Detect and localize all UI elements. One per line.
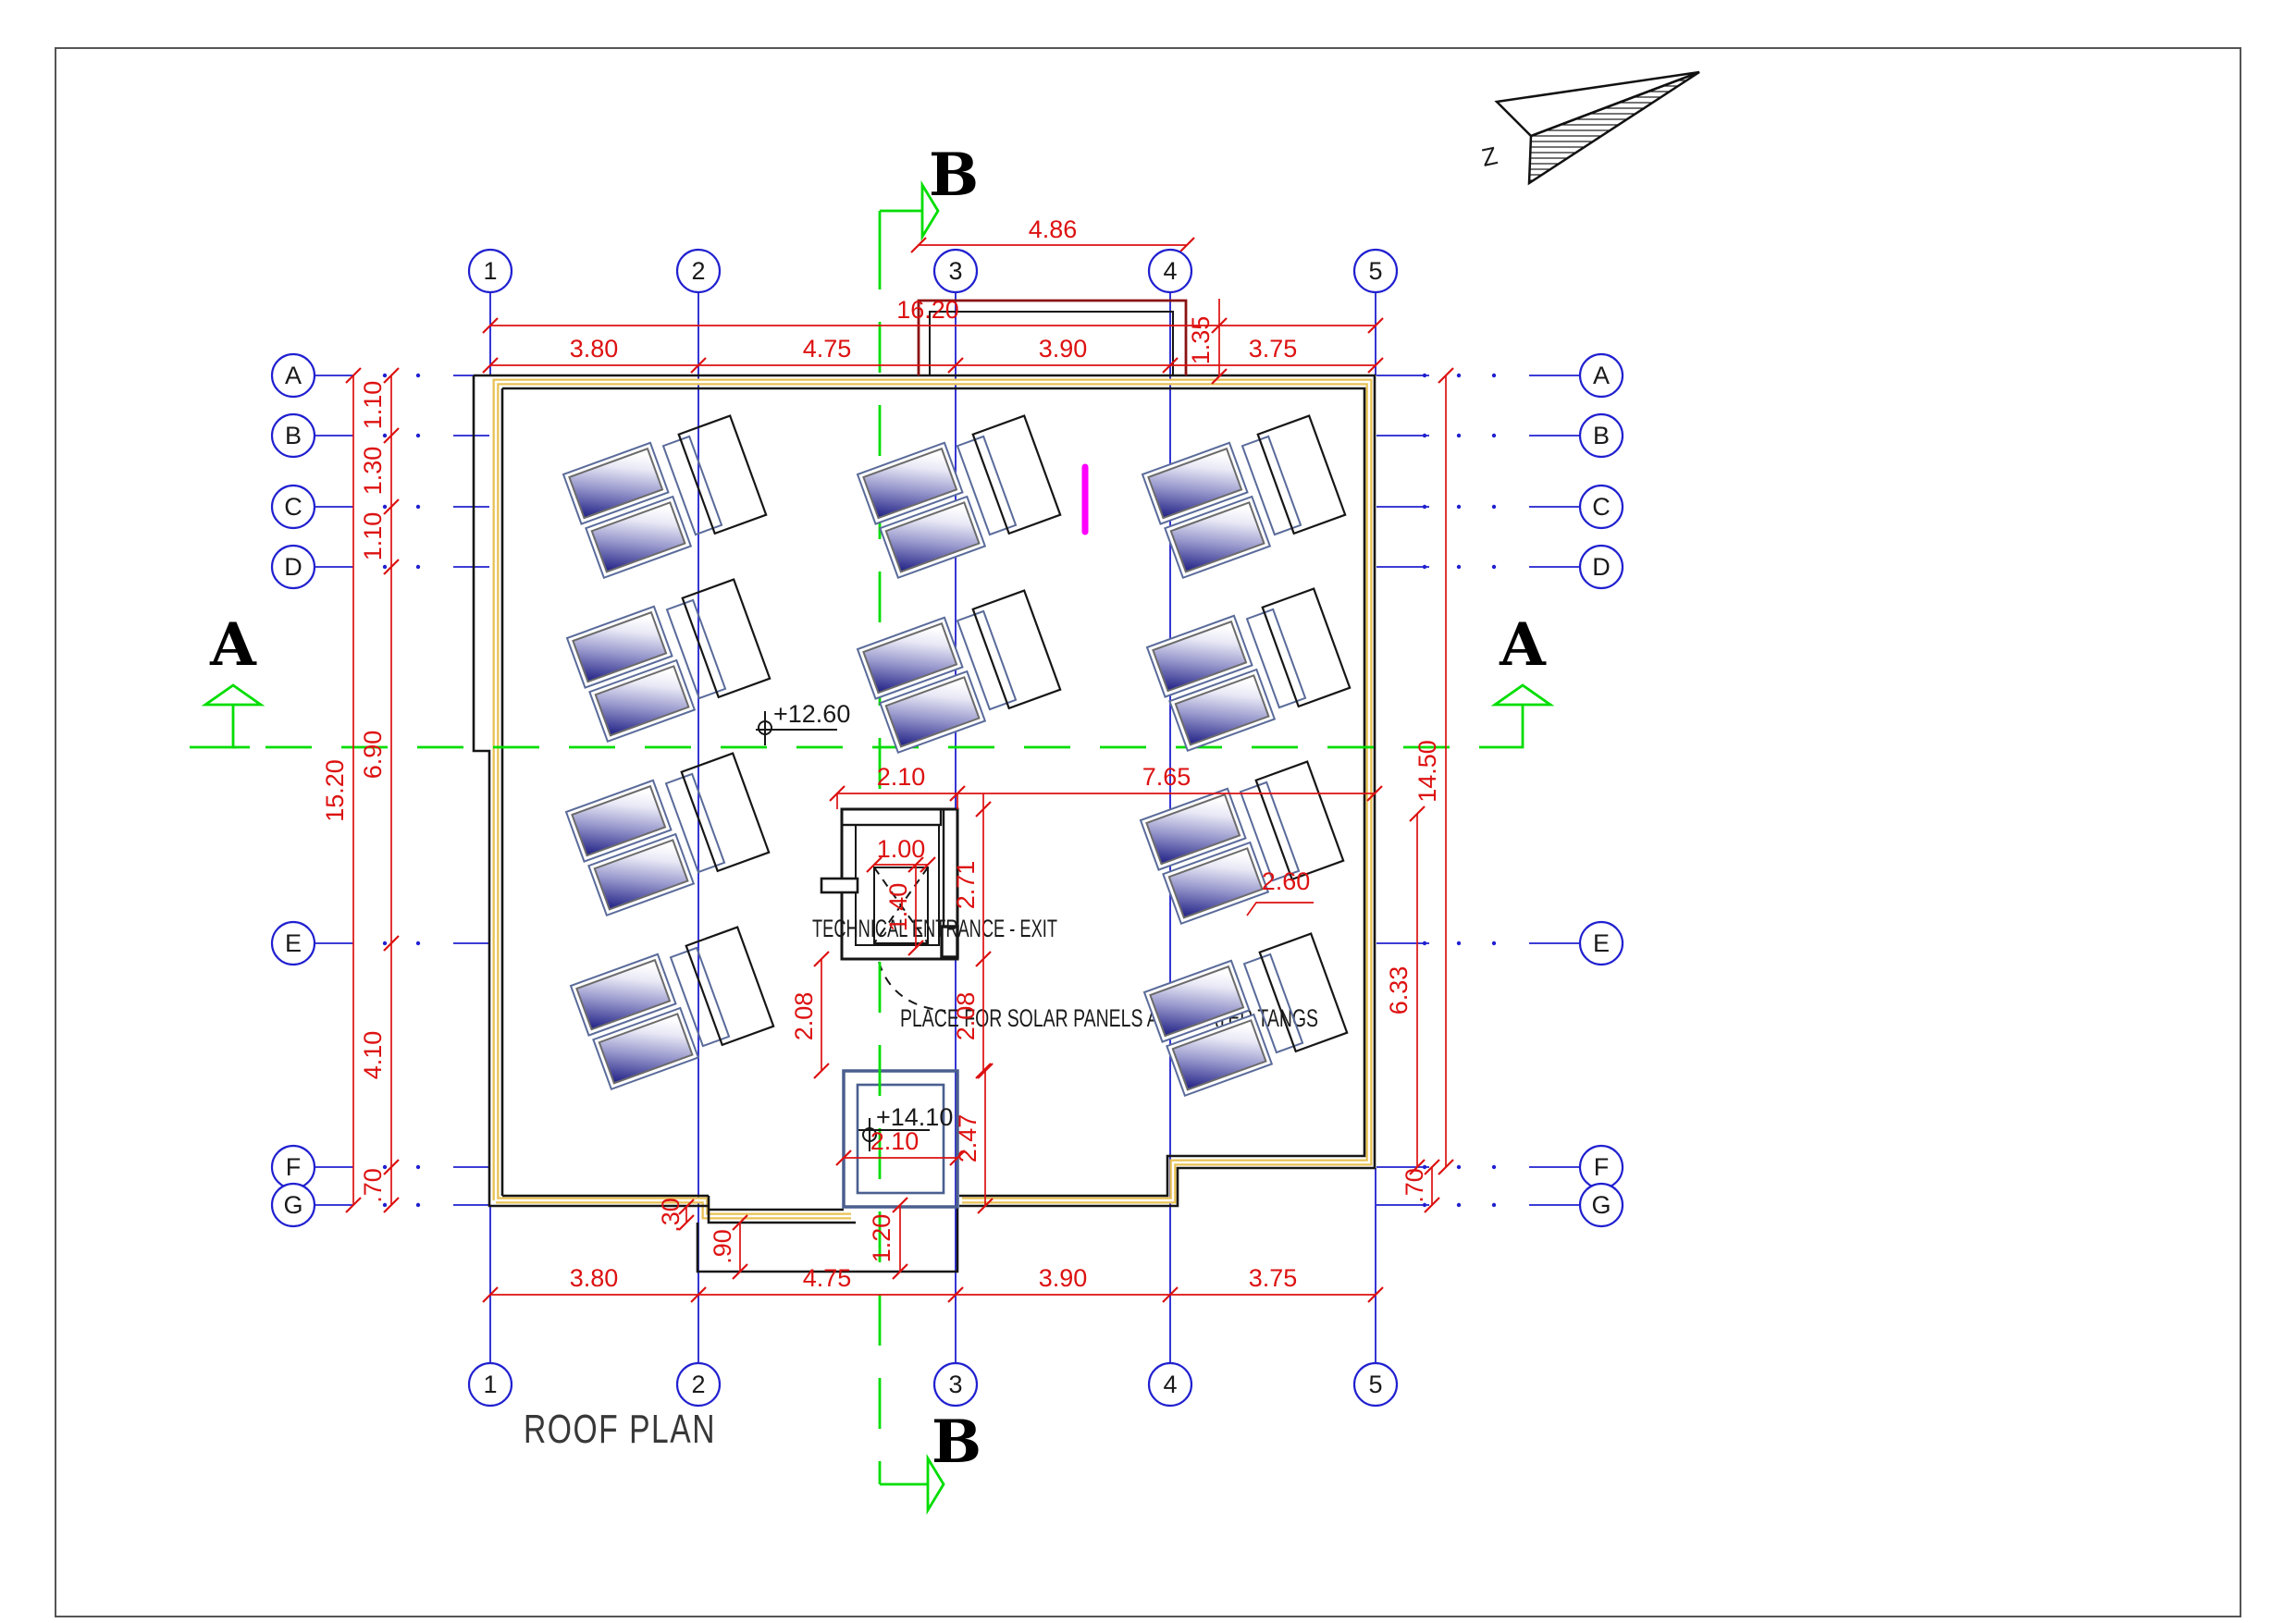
solar-panel-group: [1142, 414, 1347, 579]
svg-text:D: D: [284, 553, 302, 581]
grid-bubble-row-d-left: D: [272, 546, 315, 588]
dim-label: 2.08: [790, 992, 818, 1041]
elevation-value: +12.60: [773, 700, 850, 728]
dim-label: .30: [657, 1198, 685, 1233]
grid-bubble-col-4-top: 4: [1149, 250, 1191, 292]
svg-text:4: 4: [1163, 257, 1177, 285]
section-line-a: [190, 685, 1550, 747]
dim-label: 3.90: [1039, 335, 1088, 363]
dim-label: 14.50: [1413, 740, 1441, 803]
grid-bubble-row-c-left: C: [272, 486, 315, 528]
dim-label: 6.90: [359, 731, 387, 780]
solar-panel-group: [858, 589, 1062, 754]
dim-label: 1.20: [868, 1214, 895, 1263]
dim-label: 3.80: [570, 1264, 619, 1292]
dim-label: 1.10: [359, 512, 387, 561]
svg-text:1: 1: [483, 1371, 497, 1398]
roof-plan-drawing: Z: [0, 0, 2296, 1623]
svg-text:C: C: [1592, 493, 1611, 521]
section-arrow-a-right: [1495, 685, 1550, 705]
dim-label: 2.10: [870, 1127, 920, 1155]
grid-bubble-col-5-top: 5: [1354, 250, 1397, 292]
dim-label: 2.71: [952, 861, 980, 910]
solar-panel-group: [571, 926, 775, 1090]
grid-bubble-col-1-top: 1: [469, 250, 512, 292]
svg-text:2: 2: [691, 1371, 705, 1398]
svg-text:B: B: [1593, 422, 1610, 449]
solar-panel-group: [563, 414, 768, 579]
grid-bubble-col-4-bottom: 4: [1149, 1363, 1191, 1406]
dim-label: 15.20: [321, 759, 349, 822]
elevation-marker-roof: +12.60: [756, 700, 850, 745]
section-letter-b-top: B: [929, 141, 979, 210]
dim-label: 2.60: [1262, 867, 1311, 895]
grid-bubble-col-1-bottom: 1: [469, 1363, 512, 1406]
north-arrow-icon: Z: [1479, 72, 1699, 183]
dim-label: 1.10: [359, 381, 387, 430]
svg-text:3: 3: [948, 257, 962, 285]
svg-text:F: F: [1594, 1153, 1610, 1181]
grid-bubble-row-a-right: A: [1580, 354, 1623, 397]
dim-label: 4.75: [803, 1264, 852, 1292]
grid-bubble-row-f-right: F: [1580, 1146, 1623, 1188]
dim-label: 7.65: [1142, 763, 1191, 791]
svg-text:G: G: [283, 1191, 302, 1219]
grid-bubble-col-5-bottom: 5: [1354, 1363, 1397, 1406]
grid-bubble-row-e-right: E: [1580, 922, 1623, 965]
section-arrow-a-left: [205, 685, 261, 705]
dim-label: 2.47: [954, 1114, 981, 1163]
solar-panel-group: [858, 414, 1062, 579]
solar-panel-group: [567, 578, 772, 743]
dim-label: 1.40: [884, 883, 912, 932]
svg-text:1: 1: [483, 257, 497, 285]
dim-label: 3.90: [1039, 1264, 1088, 1292]
dim-label: 1.35: [1187, 316, 1215, 365]
grid-bubble-col-2-bottom: 2: [677, 1363, 720, 1406]
dim-label: .70: [1401, 1168, 1428, 1203]
dim-label: .70: [359, 1168, 387, 1203]
dim-label: 3.75: [1249, 335, 1298, 363]
grid-bubble-row-g-left: G: [272, 1184, 315, 1226]
dim-label: 3.75: [1249, 1264, 1298, 1292]
svg-text:5: 5: [1368, 257, 1382, 285]
svg-text:E: E: [285, 929, 302, 957]
svg-text:C: C: [284, 493, 302, 521]
dim-label: .90: [709, 1229, 736, 1264]
dim-label: 1.00: [877, 835, 926, 863]
svg-text:D: D: [1592, 553, 1611, 581]
page-title: ROOF PLAN: [524, 1407, 716, 1452]
svg-text:A: A: [1593, 362, 1610, 389]
technical-entrance-label: TECHNICAL ENTRANCE - EXIT: [812, 915, 1057, 942]
section-letter-a-right: A: [1499, 610, 1547, 680]
svg-text:B: B: [285, 422, 302, 449]
dim-label: 4.75: [803, 335, 852, 363]
svg-text:2: 2: [691, 257, 705, 285]
grid-bubble-row-b-left: B: [272, 414, 315, 457]
dim-label: 1.30: [359, 447, 387, 496]
grid-bubble-row-f-left: F: [272, 1146, 315, 1188]
section-letter-a-left: A: [209, 610, 257, 680]
dim-label: 16.20: [896, 296, 959, 324]
solar-panel-group: [566, 752, 771, 916]
grid-bubble-row-c-right: C: [1580, 486, 1623, 528]
svg-text:3: 3: [948, 1371, 962, 1398]
grid-bubble-col-3-bottom: 3: [934, 1363, 977, 1406]
grid-bubble-col-2-top: 2: [677, 250, 720, 292]
section-letter-b-bottom: B: [932, 1408, 981, 1477]
svg-text:E: E: [1593, 929, 1610, 957]
grid-bubble-row-b-right: B: [1580, 414, 1623, 457]
north-label: Z: [1479, 141, 1500, 172]
dim-label: 2.10: [877, 763, 926, 791]
dim-label: 4.86: [1029, 215, 1078, 243]
svg-text:G: G: [1591, 1191, 1611, 1219]
dim-label: 2.08: [952, 992, 980, 1041]
svg-text:5: 5: [1368, 1371, 1382, 1398]
grid-bubble-row-g-right: G: [1580, 1184, 1623, 1226]
dim-label: 6.33: [1385, 966, 1413, 1015]
grid-bubble-row-d-right: D: [1580, 546, 1623, 588]
dim-label: 3.80: [570, 335, 619, 363]
svg-text:4: 4: [1163, 1371, 1177, 1398]
dim-label: 4.10: [359, 1031, 387, 1080]
grid-bubble-row-a-left: A: [272, 354, 315, 397]
svg-text:A: A: [285, 362, 302, 389]
grid-bubble-row-e-left: E: [272, 922, 315, 965]
grid-bubble-col-3-top: 3: [934, 250, 977, 292]
svg-text:F: F: [286, 1153, 302, 1181]
solar-panel-group: [1147, 587, 1352, 752]
